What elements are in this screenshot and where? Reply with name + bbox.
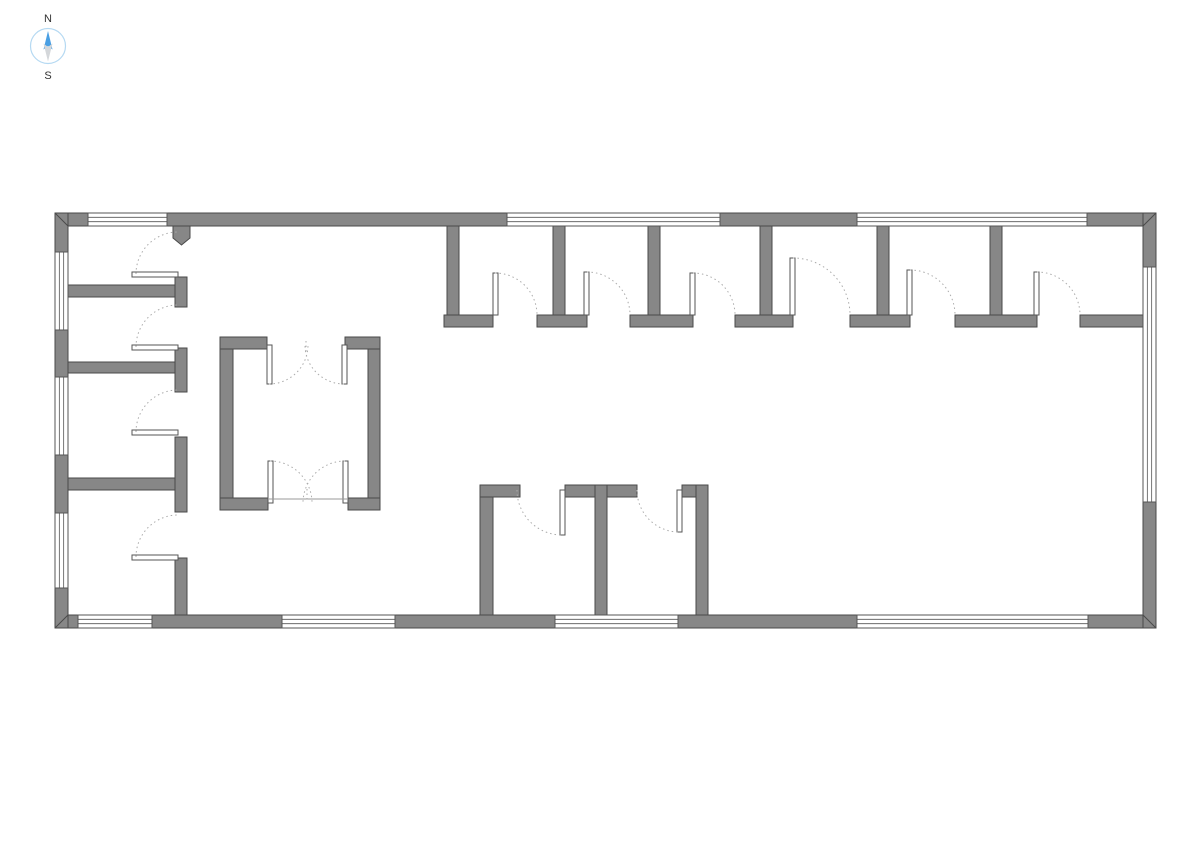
floorplan-page: N S: [0, 0, 1190, 842]
door-leaf: [343, 461, 348, 503]
door-leaf: [132, 555, 178, 560]
window: [555, 615, 678, 628]
wall-segment: [630, 315, 693, 327]
wall-segment: [348, 498, 380, 510]
wall-segment: [444, 315, 493, 327]
wall-segment: [55, 455, 68, 513]
wall-segment: [990, 226, 1002, 317]
door-leaf: [790, 258, 795, 315]
door-swing-arc: [495, 273, 537, 315]
wall-segment: [480, 485, 520, 497]
door-leaf: [1034, 272, 1039, 315]
door-leaf: [677, 490, 682, 532]
wall-segment: [167, 213, 507, 226]
door-swing-arc: [1037, 272, 1080, 315]
walls-layer: [55, 213, 1156, 628]
wall-segment: [175, 558, 187, 615]
door-swing-arc: [270, 461, 312, 503]
window: [857, 615, 1088, 628]
window: [78, 615, 152, 628]
door-leaf: [493, 273, 498, 315]
wall-segment: [345, 337, 380, 349]
wall-segment: [68, 285, 175, 297]
window: [857, 213, 1087, 226]
wall-segment: [175, 277, 187, 307]
floor-plan: [0, 0, 1190, 842]
wall-segment: [1143, 502, 1156, 628]
door-swing-arc: [910, 270, 955, 315]
door-swing-arc: [693, 273, 735, 315]
wall-segment: [537, 315, 587, 327]
wall-segment: [68, 478, 175, 490]
door-leaf: [560, 490, 565, 535]
door-leaf: [584, 272, 589, 315]
door-leaf: [132, 345, 178, 350]
wall-segment: [55, 330, 68, 377]
door-leaf: [690, 273, 695, 315]
wall-segment: [595, 485, 607, 615]
door-leaf: [907, 270, 912, 315]
wall-segment: [395, 615, 555, 628]
door-swing-arc: [136, 232, 178, 274]
wall-segment: [760, 226, 772, 317]
wall-segment: [368, 337, 380, 510]
door-swing-arc: [303, 461, 345, 503]
wall-segment: [220, 498, 268, 510]
wall-segment: [955, 315, 1037, 327]
wall-segment: [696, 485, 708, 615]
wall-segment: [553, 226, 565, 317]
wall-segment: [175, 348, 187, 392]
wall-segment: [175, 437, 187, 512]
door-leaf: [267, 345, 272, 384]
wall-segment: [1143, 213, 1156, 267]
wall-segment: [220, 337, 233, 510]
door-swing-arc: [136, 515, 178, 557]
door-leaf: [132, 430, 178, 435]
wall-segment: [152, 615, 282, 628]
window: [55, 513, 68, 588]
wall-segment: [447, 226, 459, 317]
wall-segment: [877, 226, 889, 317]
wall-segment: [648, 226, 660, 317]
door-swing-arc: [136, 305, 178, 347]
wall-segment: [735, 315, 793, 327]
window: [282, 615, 395, 628]
window: [507, 213, 720, 226]
door-swing-arc: [637, 490, 679, 532]
door-swing-arc: [136, 390, 178, 432]
window: [88, 213, 167, 226]
window: [1143, 267, 1156, 502]
door-swing-arc: [793, 258, 850, 315]
door-leaf: [342, 345, 347, 384]
door-swing-arc: [517, 490, 562, 535]
door-swing-arc: [305, 345, 344, 384]
wall-segment: [480, 485, 493, 615]
door-leaf: [268, 461, 273, 503]
wall-segment: [1080, 315, 1143, 327]
wall-segment: [850, 315, 910, 327]
wall-segment: [720, 213, 857, 226]
door-leaf: [132, 272, 178, 277]
door-swing-arc: [587, 272, 630, 315]
wall-segment: [678, 615, 857, 628]
wall-segment: [220, 337, 267, 349]
wall-stub: [173, 226, 190, 245]
annotations-layer: [268, 341, 348, 502]
window: [55, 377, 68, 455]
wall-segment: [68, 362, 175, 373]
window: [55, 252, 68, 330]
door-swing-arc: [269, 345, 308, 384]
